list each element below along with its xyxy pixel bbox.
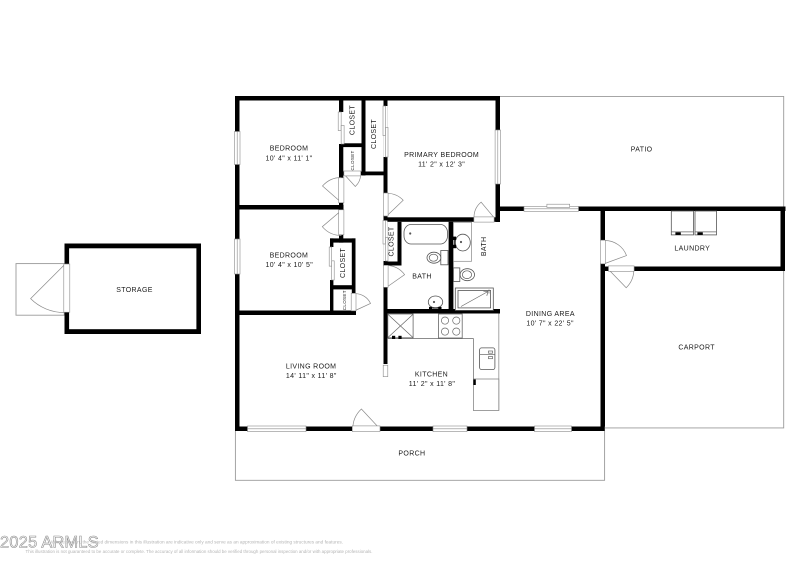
svg-text:Where shown, the stated dimens: Where shown, the stated dimensions in th… (51, 540, 343, 546)
svg-text:BATH: BATH (481, 237, 488, 257)
svg-text:PORCH: PORCH (398, 451, 425, 458)
svg-text:BATH: BATH (412, 273, 432, 280)
svg-text:CLOSET: CLOSET (389, 226, 396, 256)
svg-text:CLOSET: CLOSET (340, 247, 347, 277)
svg-text:CLOSET: CLOSET (342, 290, 347, 310)
svg-text:11' 2" x 11' 8": 11' 2" x 11' 8" (409, 381, 456, 388)
svg-text:10' 7" x 22' 5": 10' 7" x 22' 5" (526, 321, 574, 328)
svg-text:This illustration is not guara: This illustration is not guaranteed to b… (26, 549, 373, 555)
svg-text:BEDROOM: BEDROOM (270, 146, 309, 153)
svg-text:STORAGE: STORAGE (116, 287, 153, 294)
svg-text:KITCHEN: KITCHEN (415, 372, 448, 379)
svg-text:CLOSET: CLOSET (371, 119, 378, 149)
svg-text:PATIO: PATIO (631, 147, 653, 154)
svg-text:DINING AREA: DINING AREA (526, 311, 575, 318)
svg-text:11' 2" x 12' 3": 11' 2" x 12' 3" (418, 161, 465, 168)
svg-text:10' 4" x 10' 5": 10' 4" x 10' 5" (266, 262, 314, 269)
svg-text:14' 11" x 11' 8": 14' 11" x 11' 8" (286, 373, 337, 380)
svg-text:CLOSET: CLOSET (350, 150, 355, 170)
svg-text:LIVING ROOM: LIVING ROOM (286, 363, 337, 370)
svg-text:CARPORT: CARPORT (678, 345, 715, 352)
svg-text:BEDROOM: BEDROOM (270, 253, 309, 260)
svg-text:LAUNDRY: LAUNDRY (674, 245, 710, 252)
svg-text:CLOSET: CLOSET (350, 105, 357, 135)
svg-text:PRIMARY BEDROOM: PRIMARY BEDROOM (404, 152, 479, 159)
svg-text:10' 4" x 11' 1": 10' 4" x 11' 1" (265, 155, 312, 162)
